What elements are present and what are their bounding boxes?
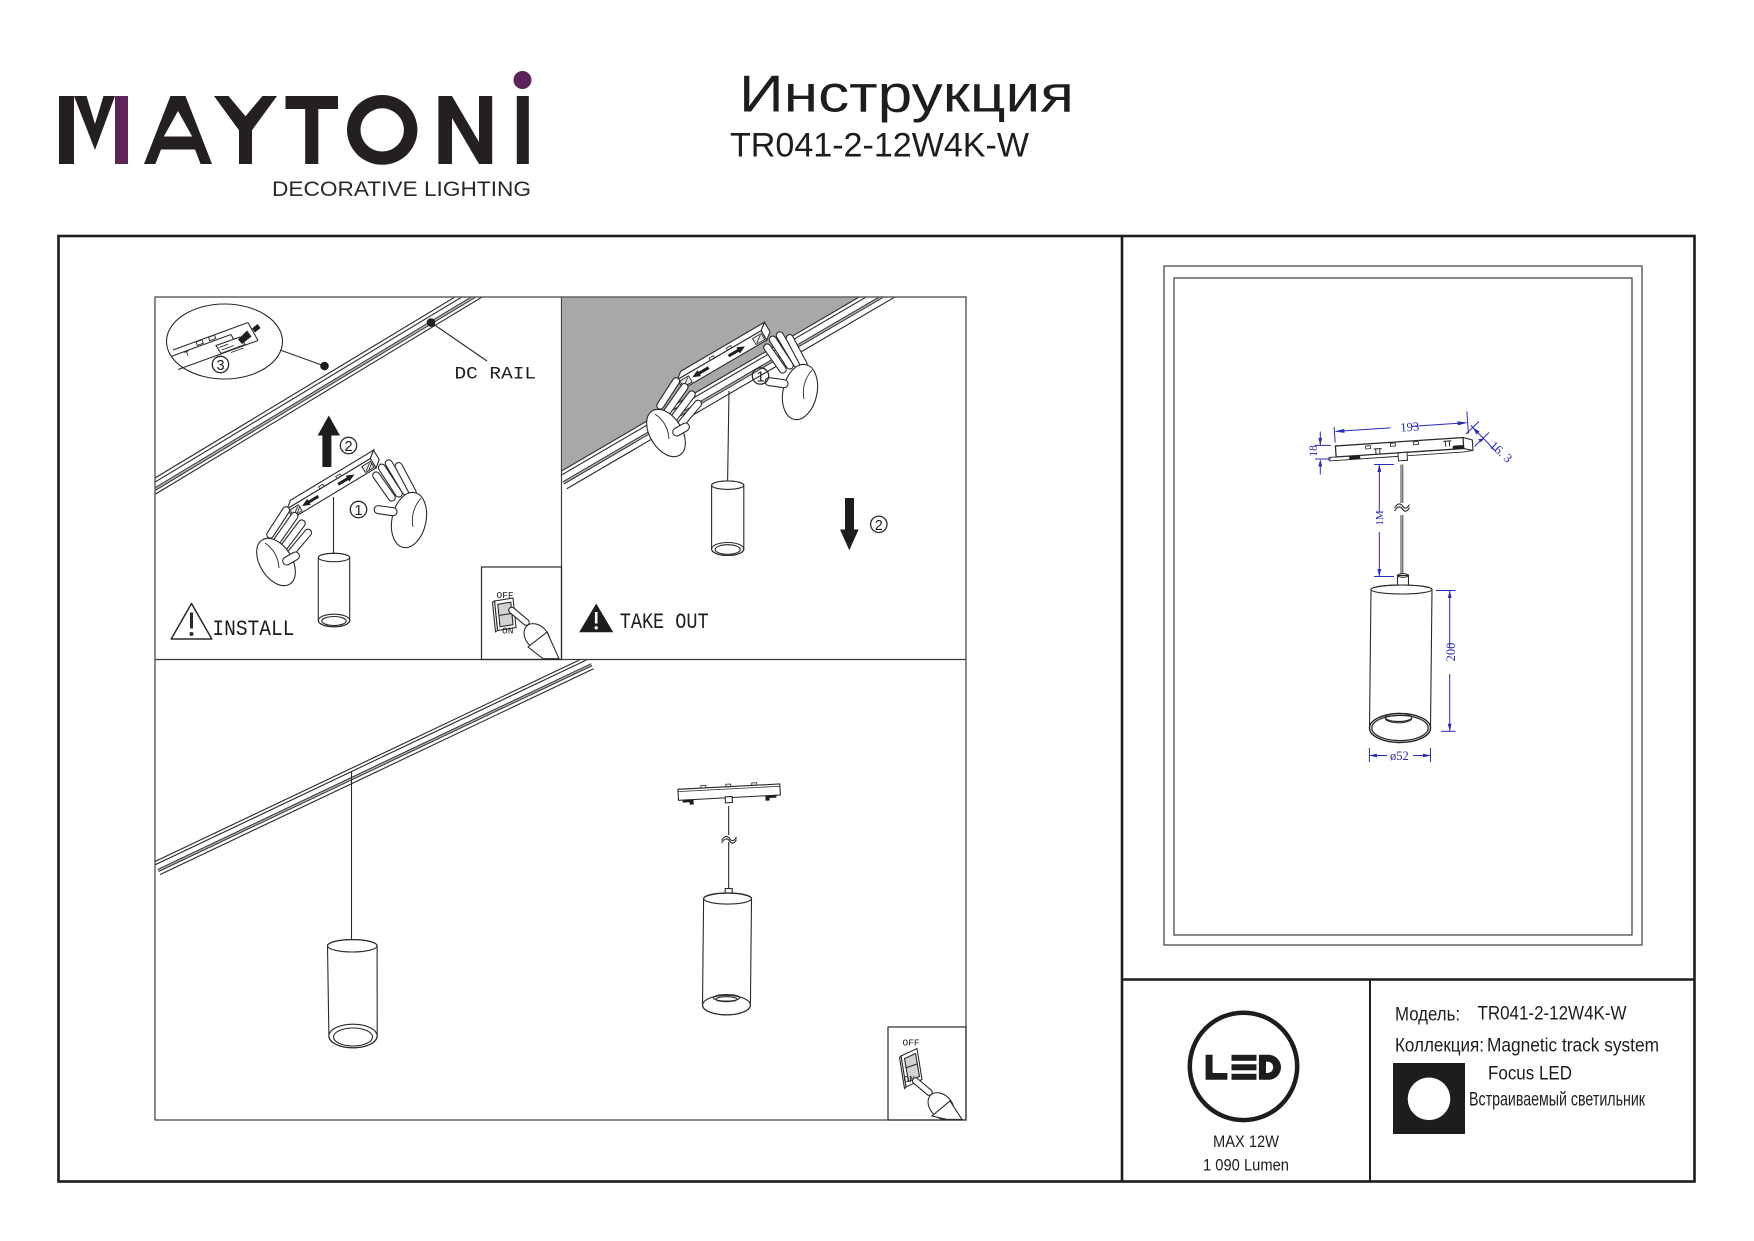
svg-text:16. 3: 16. 3 [1487, 438, 1515, 465]
svg-text:TAKE OUT: TAKE OUT [620, 610, 709, 635]
svg-text:DECORATIVE LIGHTING: DECORATIVE LIGHTING [272, 178, 531, 201]
svg-text:Коллекция:: Коллекция: [1395, 1036, 1484, 1057]
svg-text:OFF: OFF [903, 1038, 920, 1049]
svg-text:DC RAIL: DC RAIL [455, 365, 537, 385]
svg-text:1: 1 [756, 370, 764, 386]
svg-text:3: 3 [216, 358, 224, 374]
svg-text:TR041-2-12W4K-W: TR041-2-12W4K-W [730, 127, 1029, 165]
svg-text:18: 18 [1308, 445, 1320, 457]
svg-text:Модель:: Модель: [1395, 1005, 1460, 1026]
svg-text:Инструкция: Инструкция [739, 66, 1074, 124]
svg-text:200: 200 [1444, 643, 1458, 662]
svg-text:MAX 12W: MAX 12W [1213, 1132, 1279, 1151]
svg-text:1 090 Lumen: 1 090 Lumen [1203, 1156, 1289, 1175]
svg-text:ON: ON [502, 626, 513, 637]
svg-text:INSTALL: INSTALL [212, 617, 294, 642]
svg-text:TR041-2-12W4K-W: TR041-2-12W4K-W [1478, 1003, 1628, 1025]
svg-text:1: 1 [354, 503, 362, 519]
svg-text:Встраиваемый светильник: Встраиваемый светильник [1469, 1089, 1645, 1111]
svg-text:Magnetic track system: Magnetic track system [1487, 1035, 1659, 1057]
svg-text:1M: 1M [1374, 510, 1386, 526]
svg-text:ø52: ø52 [1390, 749, 1409, 763]
svg-text:Focus LED: Focus LED [1488, 1063, 1572, 1085]
svg-text:2: 2 [344, 439, 352, 455]
svg-text:2: 2 [875, 518, 883, 534]
svg-text:193: 193 [1400, 419, 1420, 434]
